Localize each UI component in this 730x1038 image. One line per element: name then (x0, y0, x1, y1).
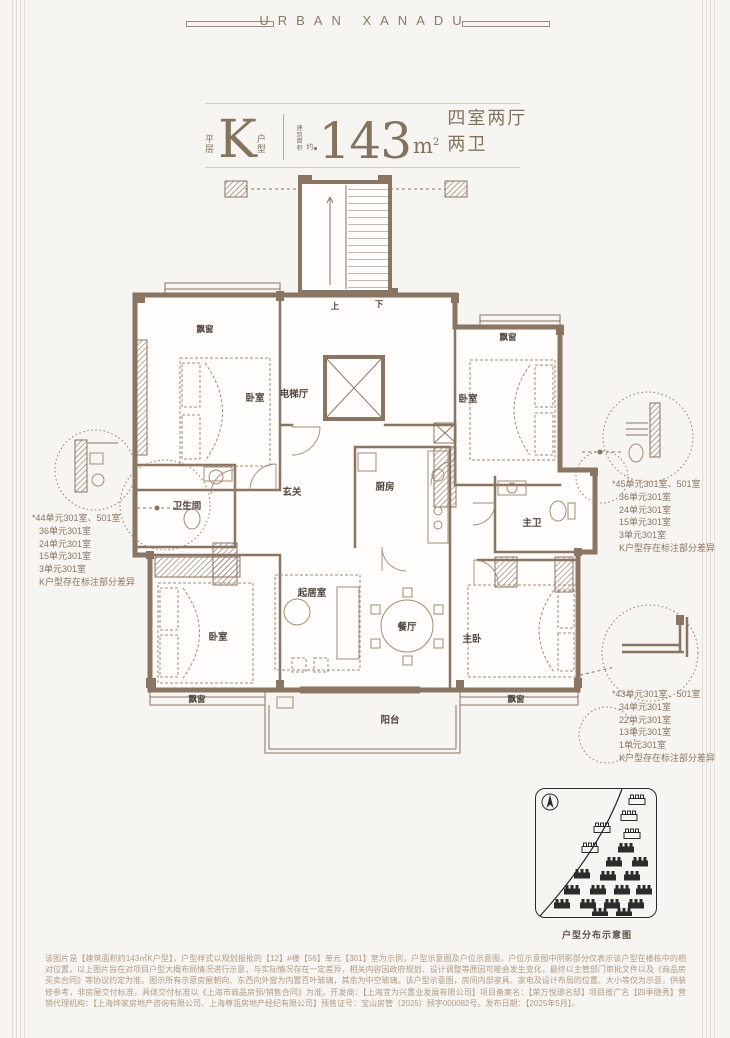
unit-spec: 四室两厅两卫 (447, 104, 535, 156)
title-suffix: 户 型 (257, 134, 267, 154)
callout-right-bottom-line: 1单元301室 (612, 739, 715, 752)
callout-right-top-line: 36单元301室 (612, 491, 715, 504)
room-label-bay-bottom-right: 飘窗 (507, 694, 525, 704)
room-label-master-bath: 主卫 (522, 517, 542, 529)
callout-right-top-line: *45单元301室、501室 (612, 478, 715, 491)
area-unit: m2 (413, 134, 439, 158)
callout-right-bottom-line: 34单元301室 (612, 701, 715, 714)
site-map-road (540, 789, 622, 916)
room-label-foyer: 玄关 (282, 486, 302, 498)
callout-circle-right-top (603, 392, 693, 482)
room-label-bed-bottom-left: 卧室 (208, 631, 228, 643)
area-unit-letter: m (413, 134, 433, 158)
disclaimer-text: 该图片是【建筑面积约143㎡K户型】，户型样式以规划报批的【12】#楼【56】单… (45, 953, 686, 1009)
callout-left-line: *44单元301室、501室 (32, 512, 135, 525)
site-map-caption: 户型分布示意图 (527, 928, 667, 941)
title-prefix-top: 平 (205, 134, 215, 144)
balcony-rails (265, 687, 460, 753)
callout-text-right-top: *45单元301室、501室 36单元301室 24单元301室 15单元301… (612, 478, 715, 555)
callout-circle-left (55, 430, 135, 510)
area-label-line2: 面积 (297, 139, 306, 152)
callout-left-line: 36单元301室 (32, 525, 135, 538)
callout-right-bottom-line: 22单元301室 (612, 714, 715, 727)
callout-right-bottom-line: *43单元301室、501室 (612, 688, 715, 701)
room-label-balcony: 阳台 (380, 714, 400, 726)
title-prefix-bottom: 层 (205, 144, 215, 154)
site-map (535, 788, 657, 918)
room-label-bed-top-right: 卧室 (458, 393, 478, 405)
compass-icon (542, 794, 558, 810)
callout-right-bottom-line: K户型存在标注部分差异 (612, 752, 715, 765)
callout-detail-right-top (626, 403, 660, 462)
room-label-bed-top-left: 卧室 (245, 392, 265, 404)
callout-right-top-line: 3单元301室 (612, 529, 715, 542)
room-label-bath: 卫生间 (173, 500, 202, 512)
title-prefix: 平 层 (205, 134, 215, 154)
callout-left-line: K户型存在标注部分差异 (32, 576, 135, 589)
unit-type-letter: K (218, 118, 257, 162)
unit-title: 平 层 K 户 型 建筑 面积 约 143 m2 四室两厅两卫 (205, 106, 535, 164)
area-label: 建筑 面积 (297, 126, 306, 152)
site-map-buildings (554, 795, 652, 916)
area-value: 143 (319, 120, 411, 162)
room-label-master-bed: 主卧 (462, 633, 482, 645)
stair-up-label: 上 (331, 301, 340, 311)
callout-text-left: *44单元301室、501室 36单元301室 24单元301室 15单元301… (32, 512, 135, 589)
room-label-bay-top-left: 飘窗 (196, 324, 214, 334)
title-suffix-bottom: 型 (257, 144, 267, 154)
left-fringe-decoration (12, 0, 28, 1038)
dot-separator (314, 147, 316, 150)
room-label-kitchen: 厨房 (375, 481, 394, 493)
callout-detail-left (75, 440, 118, 492)
room-label-elevator-hall: 电梯厅 (280, 388, 309, 400)
room-label-dining: 餐厅 (396, 621, 417, 633)
page: URBAN XANADU 平 层 K 户 型 建筑 面积 约 143 m2 四室… (0, 0, 730, 1038)
floor-plan: 飘窗 卧室 电梯厅 卫生间 玄关 厨房 卧室 飘窗 主卫 起居室 卧室 餐厅 主… (30, 175, 700, 775)
callout-right-bottom-line: 13单元301室 (612, 726, 715, 739)
area-label-tail: 约 (306, 142, 313, 152)
header-right-ornament (462, 21, 550, 27)
callout-right-top-line: K户型存在标注部分差异 (612, 542, 715, 555)
title-suffix-top: 户 (257, 134, 267, 144)
staircase (225, 175, 467, 292)
callout-left-line: 3单元301室 (32, 563, 135, 576)
callout-left-line: 24单元301室 (32, 538, 135, 551)
area-unit-sup: 2 (433, 137, 439, 148)
area-label-line1: 建筑 (297, 126, 306, 139)
title-divider (283, 114, 284, 160)
brand-title: URBAN XANADU (0, 13, 730, 28)
site-map-drawing (536, 789, 655, 916)
callout-right-top-line: 24单元301室 (612, 504, 715, 517)
callout-text-right-bottom: *43单元301室、501室 34单元301室 22单元301室 13单元301… (612, 688, 715, 765)
callout-right-top-line: 15单元301室 (612, 516, 715, 529)
room-label-living: 起居室 (297, 587, 327, 599)
callout-detail-right-bottom (622, 615, 687, 657)
room-label-bay-top-right: 飘窗 (499, 332, 517, 342)
stair-down-label: 下 (375, 299, 384, 309)
room-label-bay-bottom-left: 飘窗 (188, 694, 206, 704)
callout-left-line: 15单元301室 (32, 550, 135, 563)
